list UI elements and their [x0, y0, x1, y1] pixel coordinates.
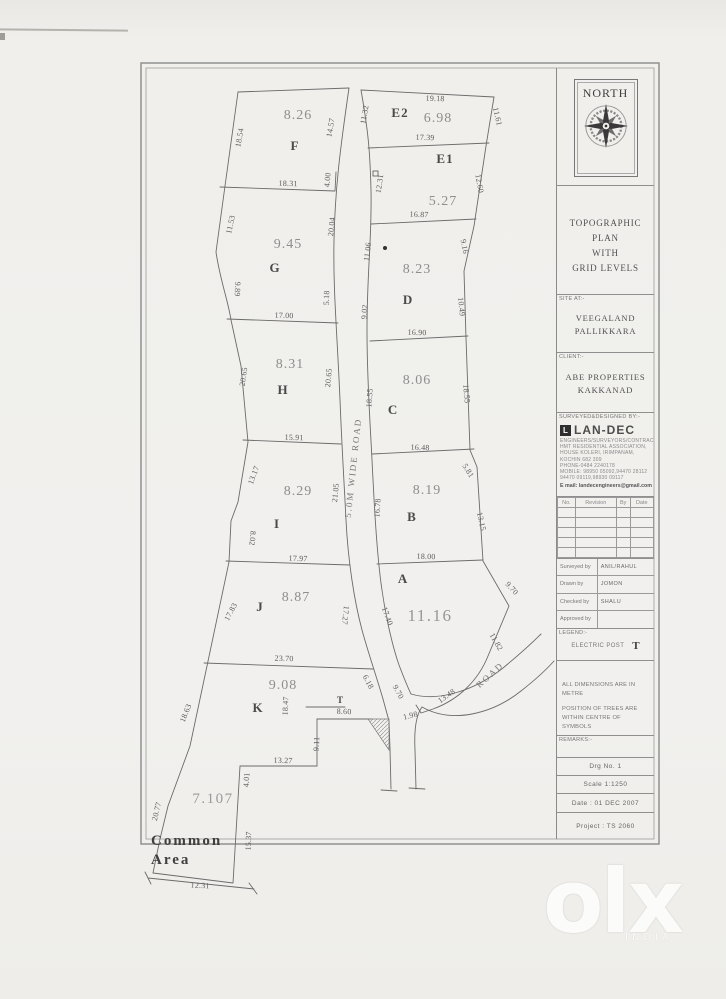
revision-row — [558, 548, 654, 558]
client-name-line: KAKKANAD — [557, 384, 654, 397]
tree-symbol — [383, 246, 387, 250]
plot-letter-I: I — [274, 516, 280, 531]
client-label: CLIENT:- — [559, 354, 584, 360]
signoff-section: Surveyed by ANIL/RAHUL Drawn by JOMON Ch… — [557, 559, 654, 629]
road-label: 5.0M WIDE ROAD — [343, 417, 363, 518]
site-section: SITE AT:- VEEGALAND PALLIKKARA — [557, 295, 654, 353]
dimension-label: 11.53 — [224, 214, 237, 234]
plot-letter-F: F — [291, 138, 300, 153]
lan-dec-logo-icon: L — [560, 425, 571, 436]
date-row: Date : 01 DEC 2007 — [557, 794, 654, 813]
dimension-label: 16.78 — [372, 498, 382, 518]
dimension-label: 18.63 — [178, 703, 193, 724]
dimension-label: 13.15 — [475, 511, 488, 531]
company-email: E mail: landecengineers@gmail.com — [560, 483, 654, 489]
dimension-label: 17.00 — [274, 311, 293, 321]
plot-area-H: 8.31 — [276, 357, 305, 372]
date-value: Date : 01 DEC 2007 — [572, 800, 639, 807]
dimension-label: 18.55 — [364, 388, 374, 408]
compass-rose-icon — [581, 101, 631, 151]
dimension-label: 13.17 — [246, 465, 261, 486]
drg-no: Drg No. 1 — [589, 763, 621, 770]
plot-letter-B: B — [407, 509, 417, 524]
signoff-label: Drawn by — [557, 576, 598, 592]
plot-letter-A: A — [398, 571, 408, 586]
plot-area-B: 8.19 — [413, 483, 442, 498]
common-area-label: Area — [151, 852, 190, 868]
notes-section: ALL DIMENSIONS ARE IN METRE POSITION OF … — [557, 661, 654, 736]
north-section: NORTH — [557, 68, 654, 186]
road-branch-right-upper — [411, 634, 541, 697]
signoff-row: Approved by — [557, 611, 654, 628]
revision-table: No. Revision By Date — [557, 497, 654, 558]
dimension-label: 15.91 — [284, 433, 303, 443]
note-line: ALL DIMENSIONS ARE IN METRE — [562, 681, 650, 699]
plot-area-I: 8.29 — [284, 484, 313, 499]
signoff-value: SHALU — [598, 594, 654, 610]
dimension-label: 18.55 — [461, 384, 472, 404]
signoff-label: Approved by — [557, 611, 598, 628]
title-block: NORTH TOPO — [556, 68, 654, 839]
legend-label: LEGEND:- — [559, 630, 587, 636]
road-label: ROAD — [474, 660, 506, 690]
dimension-label: 13.48 — [436, 687, 457, 705]
surveyor-section: SURVEYED&DESIGNED BY:- L LAN-DEC ENGINEE… — [557, 413, 654, 497]
road-branch-down-right — [415, 707, 422, 789]
site-boundary-top — [238, 88, 494, 97]
plot-letter-G: G — [269, 260, 280, 275]
rev-header-revision: Revision — [575, 498, 616, 508]
plot-area-G: 9.45 — [274, 237, 303, 252]
signoff-label: Checked by — [557, 594, 598, 610]
plot-letter-H: H — [277, 382, 288, 397]
electric-post-legend-symbol: T — [632, 640, 639, 652]
north-box: NORTH — [574, 79, 638, 177]
dimension-label: 15.37 — [244, 831, 254, 850]
plot-area-F: 8.26 — [284, 108, 313, 123]
client-section: CLIENT:- ABE PROPERTIES KAKKANAD — [557, 353, 654, 413]
dimension-label: 9.11 — [312, 736, 322, 751]
legend-section: LEGEND:- ELECTRIC POST T — [557, 629, 654, 661]
plot-area-A: 11.16 — [407, 606, 452, 625]
rev-header-date: Date — [630, 498, 653, 508]
drawing-title-line: GRID LEVELS — [557, 261, 654, 276]
signoff-value: ANIL/RAHUL — [598, 559, 654, 575]
project-row: Project : TS 2060 — [557, 813, 654, 839]
signoff-row: Drawn by JOMON — [557, 576, 654, 593]
plot-letter-E2: E2 — [391, 105, 408, 120]
plot-letter-K: K — [252, 700, 263, 715]
dimension-label: 20.77 — [150, 801, 163, 822]
remarks-section: REMARKS:- — [557, 736, 654, 758]
dimension-label: 5.81 — [460, 462, 475, 479]
dimension-label: 17.27 — [340, 605, 351, 625]
site-name-line: PALLIKKARA — [557, 325, 654, 338]
plot-letter-E1: E1 — [436, 151, 453, 166]
revision-table-section: No. Revision By Date — [557, 497, 654, 559]
north-label: NORTH — [575, 86, 637, 101]
dimension-label: 16.90 — [407, 328, 426, 338]
company-line: 94470 09119,98930 09117 — [560, 475, 654, 481]
rev-header-no: No. — [558, 498, 576, 508]
signoff-value — [598, 611, 654, 628]
plot-area-K: 9.08 — [269, 678, 298, 693]
hatched-area — [368, 719, 389, 750]
dimension-label: 9.16 — [459, 238, 471, 254]
dimension-label: 6.18 — [361, 673, 376, 690]
electric-post-symbol: T — [337, 695, 343, 705]
surveyor-label: SURVEYED&DESIGNED BY:- — [559, 414, 640, 420]
plot-area-E2: 6.98 — [424, 111, 453, 126]
dimension-label: 16.87 — [409, 210, 428, 220]
dimension-label: 1.98 — [402, 709, 419, 721]
plot-area-D: 8.23 — [403, 262, 432, 277]
dimension-label: 16.48 — [410, 443, 429, 453]
dimension-label: 11.82 — [488, 631, 505, 652]
dimension-label: 11.06 — [362, 242, 373, 262]
revision-row — [558, 508, 654, 518]
company-name: LAN-DEC — [574, 423, 635, 437]
legend-item-electric-post: ELECTRIC POST — [571, 643, 624, 649]
plot-letter-J: J — [256, 599, 264, 614]
dimension-label: 11.61 — [491, 106, 504, 126]
site-boundary-left — [153, 92, 248, 873]
dimension-label: 12.31 — [190, 881, 209, 891]
note-line: POSITION OF TREES ARE — [562, 705, 650, 714]
note-line: WITHIN CENTRE OF SYMBOLS — [562, 714, 650, 732]
dimension-label: 21.05 — [330, 483, 341, 503]
dimension-label: 18.31 — [278, 179, 297, 189]
dimension-label: 23.70 — [274, 654, 293, 664]
dimension-label: 8.02 — [247, 530, 257, 546]
plot-letter-C: C — [388, 402, 398, 417]
dimension-label: 9.70 — [391, 683, 406, 700]
common-area-label: Common — [151, 833, 222, 849]
signoff-label: Surveyed by — [557, 559, 598, 575]
project-value: Project : TS 2060 — [576, 823, 635, 830]
site-label: SITE AT:- — [559, 296, 585, 302]
scale-value: Scale 1:1250 — [584, 781, 628, 788]
dimension-label: 9.89 — [233, 282, 243, 297]
dimension-label: 4.01 — [242, 772, 252, 787]
dimension-label: 12.31 — [374, 174, 386, 194]
dimension-label: 20.04 — [326, 217, 337, 237]
dimension-label: 17.83 — [222, 601, 239, 622]
dimension-label: 9.02 — [360, 304, 370, 319]
dimension-label: 8.60 — [337, 707, 352, 717]
common-area-value: 7.107 — [192, 791, 233, 807]
dimension-label: 18.00 — [416, 552, 435, 562]
drawing-title-line: WITH — [557, 246, 654, 261]
revision-row — [558, 518, 654, 528]
signoff-row: Surveyed by ANIL/RAHUL — [557, 559, 654, 576]
dimension-label: 10.49 — [456, 297, 467, 317]
dimension-label: 20.65 — [323, 368, 334, 388]
revision-row — [558, 528, 654, 538]
plot-letter-D: D — [403, 292, 413, 307]
dimension-label: 17.39 — [415, 133, 434, 143]
dimension-label: 20.65 — [238, 367, 250, 387]
dimension-label: 9.70 — [504, 580, 521, 597]
dimension-label: 5.18 — [322, 290, 332, 305]
dimension-label: 18.47 — [281, 696, 291, 715]
dimension-label: 4.00 — [322, 172, 332, 188]
signoff-value: JOMON — [598, 576, 654, 592]
scale-row: Scale 1:1250 — [557, 776, 654, 794]
drawing-title-line: TOPOGRAPHIC PLAN — [557, 216, 654, 246]
revision-row — [558, 538, 654, 548]
rev-header-by: By — [616, 498, 630, 508]
dimension-label: 12.60 — [473, 173, 485, 193]
remarks-label: REMARKS:- — [559, 737, 592, 743]
road-end-ticks — [381, 788, 425, 791]
dimension-label: 14.57 — [324, 117, 336, 137]
drg-no-row: Drg No. 1 — [557, 758, 654, 776]
dimension-label: 11.32 — [358, 105, 370, 125]
plot-area-J: 8.87 — [282, 590, 311, 605]
dimension-label: 19.18 — [425, 94, 444, 104]
plot-area-C: 8.06 — [403, 373, 432, 388]
plot-k-steps — [240, 707, 372, 766]
dimension-label: 13.27 — [273, 756, 292, 766]
client-name-line: ABE PROPERTIES — [557, 371, 654, 384]
signoff-row: Checked by SHALU — [557, 594, 654, 611]
dimension-label: 17.40 — [380, 606, 395, 627]
dimension-label: 18.54 — [233, 127, 245, 147]
drawing-title-section: TOPOGRAPHIC PLAN WITH GRID LEVELS — [557, 186, 654, 295]
plot-area-E1: 5.27 — [429, 194, 458, 209]
dimension-label: 17.97 — [288, 554, 307, 564]
site-name-line: VEEGALAND — [557, 312, 654, 325]
